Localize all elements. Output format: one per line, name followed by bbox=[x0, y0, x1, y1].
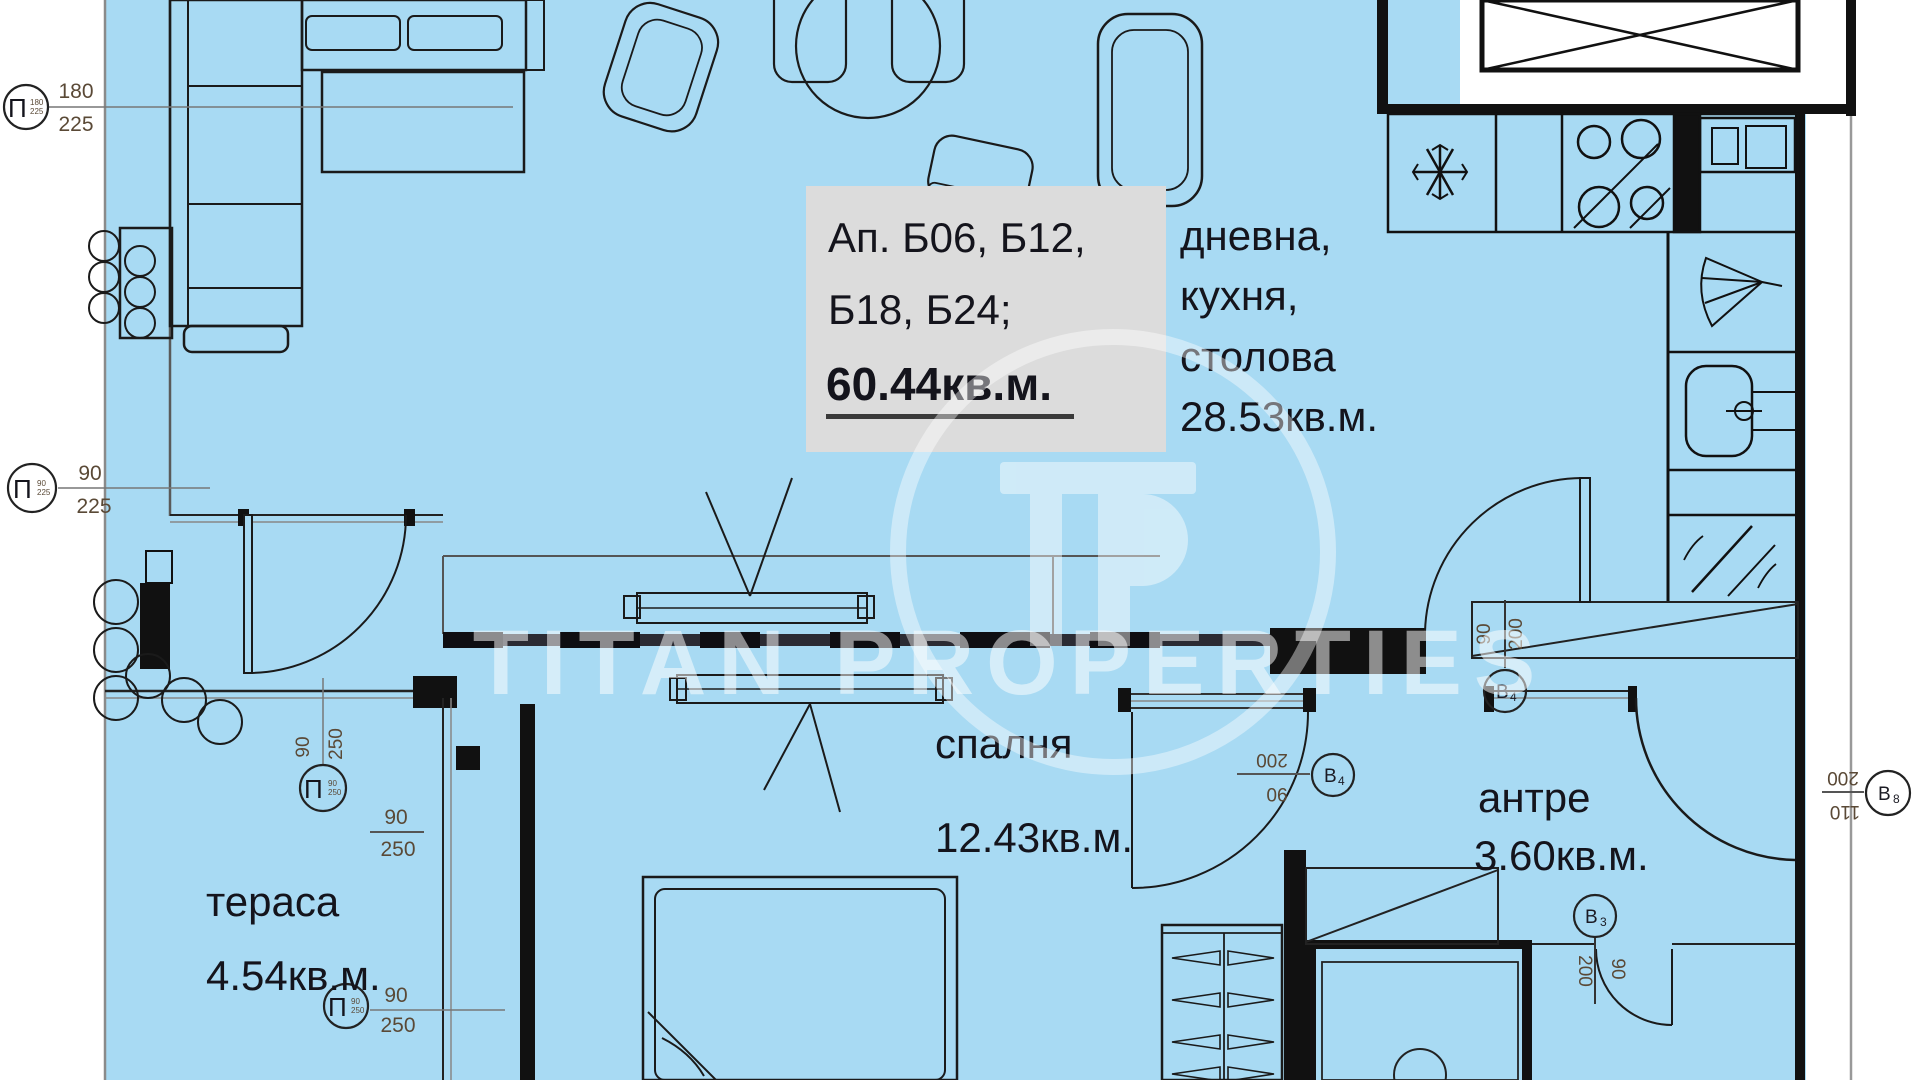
unit-line-1: Ап. Б06, Б12, bbox=[828, 214, 1086, 261]
b8-sub: 8 bbox=[1893, 792, 1900, 806]
elevator-shaft bbox=[1482, 0, 1798, 70]
living-label-1: дневна, bbox=[1180, 212, 1332, 259]
b8-top: 200 bbox=[1827, 767, 1859, 788]
b4b-top: 200 bbox=[1256, 749, 1288, 770]
b4b-bottom: 90 bbox=[1266, 783, 1287, 804]
b3-right: 90 bbox=[1607, 958, 1628, 979]
b3-left: 200 bbox=[1574, 955, 1595, 987]
p3-symbol: П bbox=[304, 774, 323, 804]
p1-symbol: П bbox=[8, 93, 27, 123]
dim-marker-b8: B 8 200 110 bbox=[1822, 767, 1910, 822]
p3-right: 250 bbox=[326, 728, 347, 760]
unit-label-box: Ап. Б06, Б12, Б18, Б24; 60.44кв.м. bbox=[806, 186, 1166, 452]
p1-bottom: 225 bbox=[58, 113, 93, 136]
hall-area: 3.60кв.м. bbox=[1474, 832, 1649, 879]
p3-inner-bottom: 250 bbox=[328, 788, 342, 797]
p2-inner-bottom: 225 bbox=[37, 488, 51, 497]
b8-label: B bbox=[1878, 784, 1891, 805]
p4-bottom: 250 bbox=[380, 1014, 415, 1037]
p3-left: 90 bbox=[293, 736, 314, 757]
p2-inner-top: 90 bbox=[37, 479, 46, 488]
terrace-area: 4.54кв.м. bbox=[206, 952, 381, 999]
p1-inner-bottom: 225 bbox=[30, 107, 44, 116]
p2-symbol: П bbox=[13, 474, 32, 504]
b8-bottom: 110 bbox=[1830, 801, 1860, 822]
p1-top: 180 bbox=[58, 80, 93, 103]
watermark-text: TITAN PROPERTIES bbox=[473, 612, 1548, 714]
b3-sub: 3 bbox=[1600, 915, 1607, 929]
living-label-2: кухня, bbox=[1180, 272, 1298, 319]
bedroom-area: 12.43кв.м. bbox=[935, 814, 1133, 861]
b4b-label: B bbox=[1324, 766, 1337, 787]
unit-line-2: Б18, Б24; bbox=[828, 286, 1012, 333]
b3-label: B bbox=[1585, 907, 1598, 928]
p1-inner-top: 180 bbox=[30, 98, 44, 107]
hall-label: антре bbox=[1478, 774, 1591, 821]
f1-bottom: 250 bbox=[380, 838, 415, 861]
p4-inner-bottom: 250 bbox=[351, 1006, 365, 1015]
f1-top: 90 bbox=[384, 806, 407, 829]
p3-inner-top: 90 bbox=[328, 779, 337, 788]
p4-top: 90 bbox=[384, 984, 407, 1007]
p2-bottom: 225 bbox=[76, 495, 111, 518]
b4b-sub: 4 bbox=[1338, 774, 1345, 788]
p2-top: 90 bbox=[78, 462, 101, 485]
terrace-label: тераса bbox=[206, 878, 340, 925]
floor-plan: П 180 225 180 225 П 90 225 90 225 П 90 2… bbox=[0, 0, 1920, 1080]
